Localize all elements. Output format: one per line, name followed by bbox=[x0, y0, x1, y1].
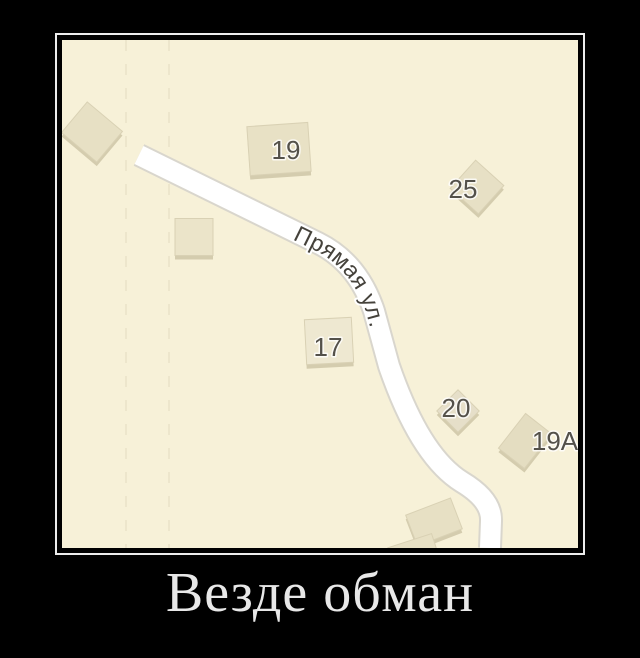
map-background bbox=[62, 40, 578, 548]
building bbox=[175, 219, 213, 260]
house-number-label: 17 bbox=[314, 332, 343, 362]
house-number-label: 25 bbox=[449, 174, 478, 204]
house-number-label: 19А bbox=[532, 426, 578, 456]
demotivator-poster: Прямая ул.1925172019А Везде обман bbox=[0, 0, 640, 658]
photo-frame: Прямая ул.1925172019А bbox=[55, 33, 585, 555]
house-number-label: 19 bbox=[272, 135, 301, 165]
house-number-label: 20 bbox=[442, 393, 471, 423]
building-footprint bbox=[175, 219, 213, 256]
map-image: Прямая ул.1925172019А bbox=[62, 40, 578, 548]
caption-text: Везде обман bbox=[0, 556, 640, 658]
